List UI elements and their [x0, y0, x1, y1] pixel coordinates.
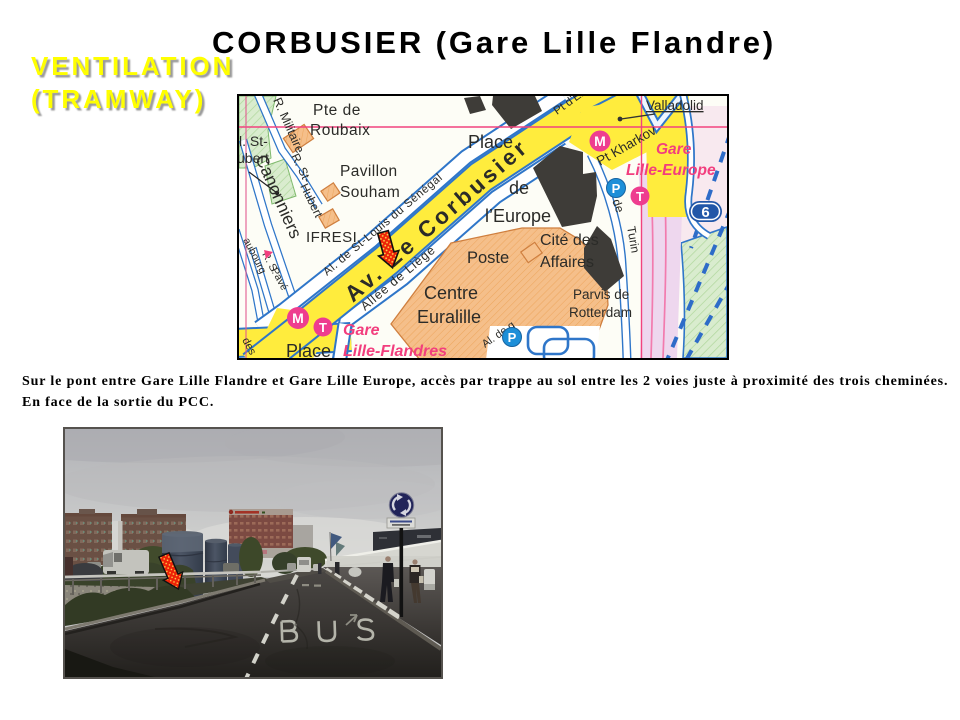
svg-text:T: T	[319, 320, 327, 335]
svg-text:Rotterdam: Rotterdam	[569, 305, 632, 320]
svg-text:Place: Place	[286, 341, 331, 358]
svg-text:Pavillon: Pavillon	[340, 163, 397, 180]
svg-text:P: P	[612, 181, 621, 196]
svg-text:IFRESI: IFRESI	[306, 229, 357, 246]
svg-text:Lille-Europe: Lille-Europe	[626, 162, 716, 179]
svg-text:Pte de: Pte de	[313, 102, 361, 119]
svg-text:M: M	[292, 310, 304, 326]
svg-text:Roubaix: Roubaix	[310, 122, 370, 139]
svg-text:de: de	[509, 178, 529, 198]
svg-text:l. St-: l. St-	[239, 133, 268, 149]
svg-text:Gare: Gare	[343, 322, 380, 339]
svg-text:Affaires: Affaires	[540, 254, 594, 271]
svg-text:Gare: Gare	[656, 141, 692, 158]
svg-text:Euralille: Euralille	[417, 307, 481, 327]
svg-text:Souham: Souham	[340, 184, 400, 201]
svg-text:6: 6	[701, 204, 709, 221]
svg-text:Lille-Flandres: Lille-Flandres	[343, 343, 447, 358]
svg-text:M: M	[594, 133, 606, 149]
svg-text:P: P	[508, 330, 517, 345]
svg-text:Parvis de: Parvis de	[573, 287, 629, 302]
svg-text:l’Europe: l’Europe	[485, 206, 551, 226]
svg-text:Cité des: Cité des	[540, 232, 599, 249]
svg-text:Centre: Centre	[424, 283, 478, 303]
svg-text:T: T	[636, 189, 644, 204]
svg-text:Valladolid: Valladolid	[646, 98, 704, 113]
svg-text:Poste: Poste	[467, 249, 509, 267]
